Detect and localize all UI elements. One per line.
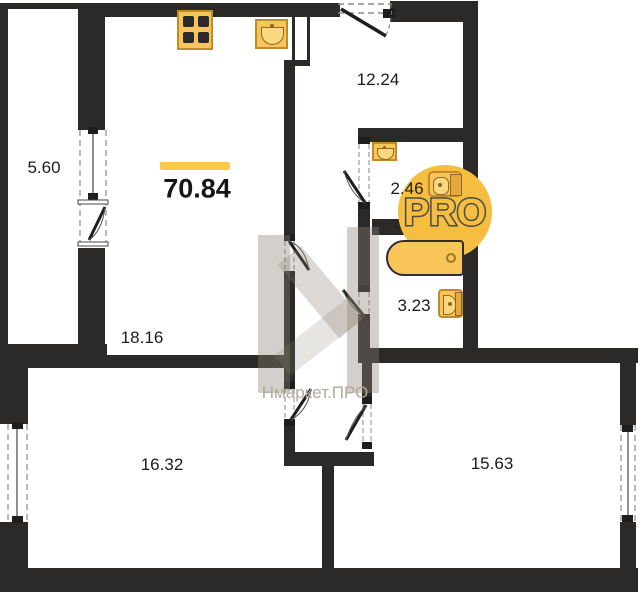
watermark-logo xyxy=(250,205,385,405)
total-area-bar xyxy=(160,162,230,170)
floor-plan: Нмаркет.ПРО PRO 70.84 5.60 12.24 2.46 3.… xyxy=(0,0,644,600)
kitchen-sink-icon xyxy=(255,19,288,49)
room-label-bedroom-left: 16.32 xyxy=(141,455,184,475)
stove-icon xyxy=(177,10,213,50)
bedroom-right-window xyxy=(621,425,635,522)
room-label-bathroom: 3.23 xyxy=(397,296,430,316)
room-label-bedroom-right: 15.63 xyxy=(471,454,514,474)
total-area-label: 70.84 xyxy=(163,174,231,205)
wc-door xyxy=(344,137,370,209)
washbasin-icon xyxy=(372,142,397,161)
room-label-hallway: 12.24 xyxy=(357,70,400,90)
toilet-icon-wc xyxy=(428,171,462,197)
bathtub-icon xyxy=(386,240,464,276)
toilet-icon-bathroom xyxy=(438,289,463,318)
balcony-window xyxy=(78,127,108,247)
watermark-text: Нмаркет.ПРО xyxy=(262,383,368,403)
room-label-balcony: 5.60 xyxy=(27,158,60,178)
bedroom-left-window xyxy=(8,422,27,523)
entrance-door xyxy=(338,4,395,36)
room-label-living-room: 18.16 xyxy=(121,328,164,348)
room-label-wc: 2.46 xyxy=(390,179,423,199)
